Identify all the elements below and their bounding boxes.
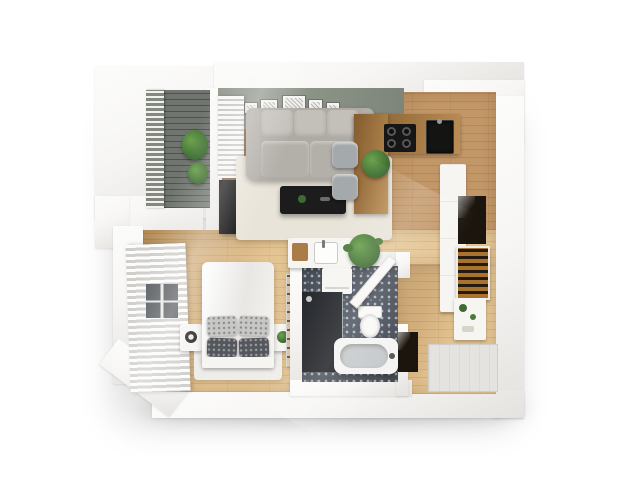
table-plant-decor (298, 195, 306, 203)
console-plant (470, 314, 476, 320)
wall-bathroom-left (290, 262, 302, 394)
nightstand-left (180, 324, 202, 351)
bedroom-window (146, 284, 178, 318)
pillow-light-left (207, 315, 238, 336)
hall-storage-niche (398, 332, 418, 372)
console-plant (459, 304, 467, 312)
bed-headboard (202, 357, 274, 368)
wall-bathroom-right-upper (396, 252, 410, 278)
plant-leaf (374, 238, 383, 245)
kitchen-chair-2 (332, 174, 358, 200)
bedside-lamp (185, 331, 197, 343)
sofa-seat-cushion (261, 141, 309, 177)
washer-seam (325, 287, 349, 289)
bathroom-plant (348, 234, 380, 268)
plant-leaf (343, 244, 353, 252)
burner (387, 139, 396, 148)
balcony-plant-large (182, 130, 208, 160)
bathtub (334, 338, 398, 374)
shoe-rack (456, 246, 490, 300)
entry-door-niche (458, 196, 486, 244)
toilet-bowl (360, 314, 380, 338)
pillow-light-right (239, 315, 270, 336)
vanity-basin (314, 242, 338, 264)
wall-bathroom-bottom (290, 380, 412, 396)
entry-doormat (428, 344, 498, 392)
burner (402, 127, 411, 136)
bedroom-window-shutters (125, 243, 190, 393)
pillow-dark-right (239, 337, 270, 357)
floorplan-render (0, 0, 640, 480)
sofa-back-cushion (294, 110, 326, 138)
console-decor (462, 326, 474, 332)
hall-console-shelf (454, 298, 486, 340)
bathtub-faucet (389, 353, 395, 359)
pillow-dark-left (207, 337, 238, 357)
bathroom-vanity (288, 238, 352, 268)
burner (402, 139, 411, 148)
sink-faucet (437, 119, 442, 124)
kitchen-plant (362, 150, 390, 178)
table-remote-decor (320, 197, 330, 201)
vanity-faucet (322, 240, 325, 248)
kitchen-chair-1 (332, 142, 358, 168)
washing-machine (322, 268, 352, 294)
balcony-plant-small (188, 162, 208, 184)
shower-head (306, 296, 312, 302)
sofa-back-cushion (261, 110, 293, 138)
sofa-armrest-left (246, 108, 260, 180)
vanity-wooden-tray (292, 243, 308, 261)
kitchen-sink (426, 120, 454, 154)
burner (387, 127, 396, 136)
balcony-railing (146, 90, 164, 208)
cooktop (384, 124, 416, 152)
bathtub-basin (340, 344, 388, 368)
